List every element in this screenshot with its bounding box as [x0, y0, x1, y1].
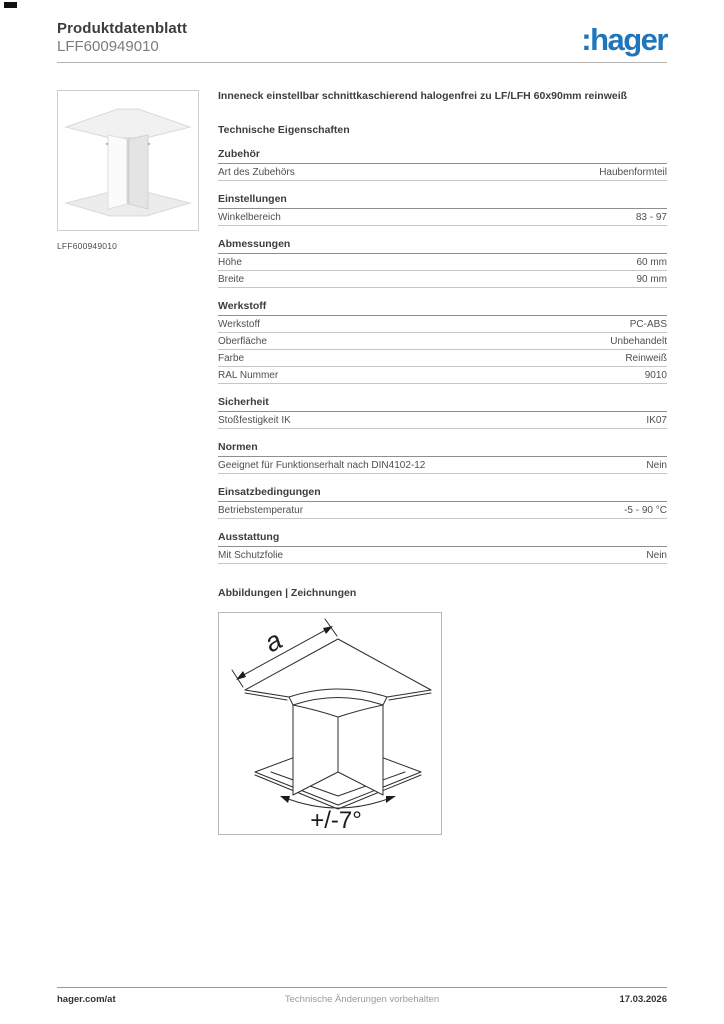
spec-row: Betriebstemperatur -5 - 90 °C: [218, 502, 667, 519]
spec-section: Sicherheit Stoßfestigkeit IK IK07: [218, 396, 667, 429]
thumbnail-caption: LFF600949010: [57, 241, 117, 251]
section-heading: Normen: [218, 441, 667, 457]
spec-row: Farbe Reinweiß: [218, 350, 667, 367]
dimension-a-label: a: [259, 625, 287, 659]
spec-row: Winkelbereich 83 - 97: [218, 209, 667, 226]
section-rows: Geeignet für Funktionserhalt nach DIN410…: [218, 457, 667, 474]
section-rows: Höhe 60 mm Breite 90 mm: [218, 254, 667, 288]
spec-value: Unbehandelt: [598, 336, 667, 347]
tech-properties-heading: Technische Eigenschaften: [218, 124, 667, 136]
section-rows: Art des Zubehörs Haubenformteil: [218, 164, 667, 181]
spec-label: Oberfläche: [218, 336, 267, 347]
spec-section: Ausstattung Mit Schutzfolie Nein: [218, 531, 667, 564]
spec-row: Höhe 60 mm: [218, 254, 667, 271]
section-heading: Zubehör: [218, 148, 667, 164]
main-content: Inneneck einstellbar schnittkaschierend …: [218, 90, 667, 835]
spec-label: Geeignet für Funktionserhalt nach DIN410…: [218, 460, 425, 471]
spec-section: Werkstoff Werkstoff PC-ABS Oberfläche Un…: [218, 300, 667, 384]
spec-row: Art des Zubehörs Haubenformteil: [218, 164, 667, 181]
spec-label: Höhe: [218, 257, 242, 268]
section-heading: Sicherheit: [218, 396, 667, 412]
section-heading: Einstellungen: [218, 193, 667, 209]
angle-label: +/-7°: [310, 807, 362, 834]
header-divider: [57, 62, 667, 63]
technical-drawing: a +/-7°: [218, 612, 442, 835]
spec-row: Oberfläche Unbehandelt: [218, 333, 667, 350]
spec-label: Stoßfestigkeit IK: [218, 415, 291, 426]
product-photo-corner-piece: [58, 91, 198, 230]
print-registration-mark: [4, 2, 17, 8]
drawings-heading: Abbildungen | Zeichnungen: [218, 587, 667, 599]
spec-section: Einstellungen Winkelbereich 83 - 97: [218, 193, 667, 226]
spec-value: 60 mm: [624, 257, 667, 268]
section-rows: Betriebstemperatur -5 - 90 °C: [218, 502, 667, 519]
section-rows: Werkstoff PC-ABS Oberfläche Unbehandelt …: [218, 316, 667, 384]
product-reference: LFF600949010: [57, 38, 159, 55]
spec-label: Mit Schutzfolie: [218, 550, 283, 561]
spec-section: Einsatzbedingungen Betriebstemperatur -5…: [218, 486, 667, 519]
section-heading: Werkstoff: [218, 300, 667, 316]
spec-value: 9010: [633, 370, 667, 381]
section-heading: Ausstattung: [218, 531, 667, 547]
spec-label: Winkelbereich: [218, 212, 281, 223]
spec-value: 90 mm: [624, 274, 667, 285]
spec-row: Geeignet für Funktionserhalt nach DIN410…: [218, 457, 667, 474]
spec-row: Stoßfestigkeit IK IK07: [218, 412, 667, 429]
spec-label: Betriebstemperatur: [218, 505, 303, 516]
tech-sections: Zubehör Art des Zubehörs Haubenformteil …: [218, 148, 667, 564]
hager-logo: :hager: [581, 22, 667, 58]
section-heading: Einsatzbedingungen: [218, 486, 667, 502]
spec-row: Mit Schutzfolie Nein: [218, 547, 667, 564]
section-rows: Winkelbereich 83 - 97: [218, 209, 667, 226]
spec-value: Nein: [634, 550, 667, 561]
spec-section: Normen Geeignet für Funktionserhalt nach…: [218, 441, 667, 474]
product-title: Inneneck einstellbar schnittkaschierend …: [218, 90, 667, 102]
section-rows: Stoßfestigkeit IK IK07: [218, 412, 667, 429]
section-heading: Abmessungen: [218, 238, 667, 254]
spec-value: Haubenformteil: [587, 167, 667, 178]
spec-row: RAL Nummer 9010: [218, 367, 667, 384]
spec-label: Werkstoff: [218, 319, 260, 330]
datasheet-page: Produktdatenblatt LFF600949010 :hager LF…: [0, 0, 724, 1024]
spec-label: RAL Nummer: [218, 370, 278, 381]
footer-date: 17.03.2026: [619, 994, 667, 1005]
spec-value: Reinweiß: [613, 353, 667, 364]
spec-value: Nein: [634, 460, 667, 471]
product-thumbnail: [57, 90, 199, 231]
spec-value: PC-ABS: [618, 319, 667, 330]
spec-value: -5 - 90 °C: [612, 505, 667, 516]
footer-disclaimer: Technische Änderungen vorbehalten: [0, 994, 724, 1005]
spec-section: Zubehör Art des Zubehörs Haubenformteil: [218, 148, 667, 181]
spec-row: Werkstoff PC-ABS: [218, 316, 667, 333]
section-rows: Mit Schutzfolie Nein: [218, 547, 667, 564]
footer-divider: [57, 987, 667, 988]
document-type-title: Produktdatenblatt: [57, 20, 187, 37]
spec-label: Art des Zubehörs: [218, 167, 295, 178]
spec-section: Abmessungen Höhe 60 mm Breite 90 mm: [218, 238, 667, 288]
spec-row: Breite 90 mm: [218, 271, 667, 288]
spec-label: Farbe: [218, 353, 244, 364]
spec-value: IK07: [634, 415, 667, 426]
spec-label: Breite: [218, 274, 244, 285]
spec-value: 83 - 97: [624, 212, 667, 223]
corner-piece-line-drawing: a +/-7°: [219, 613, 441, 834]
